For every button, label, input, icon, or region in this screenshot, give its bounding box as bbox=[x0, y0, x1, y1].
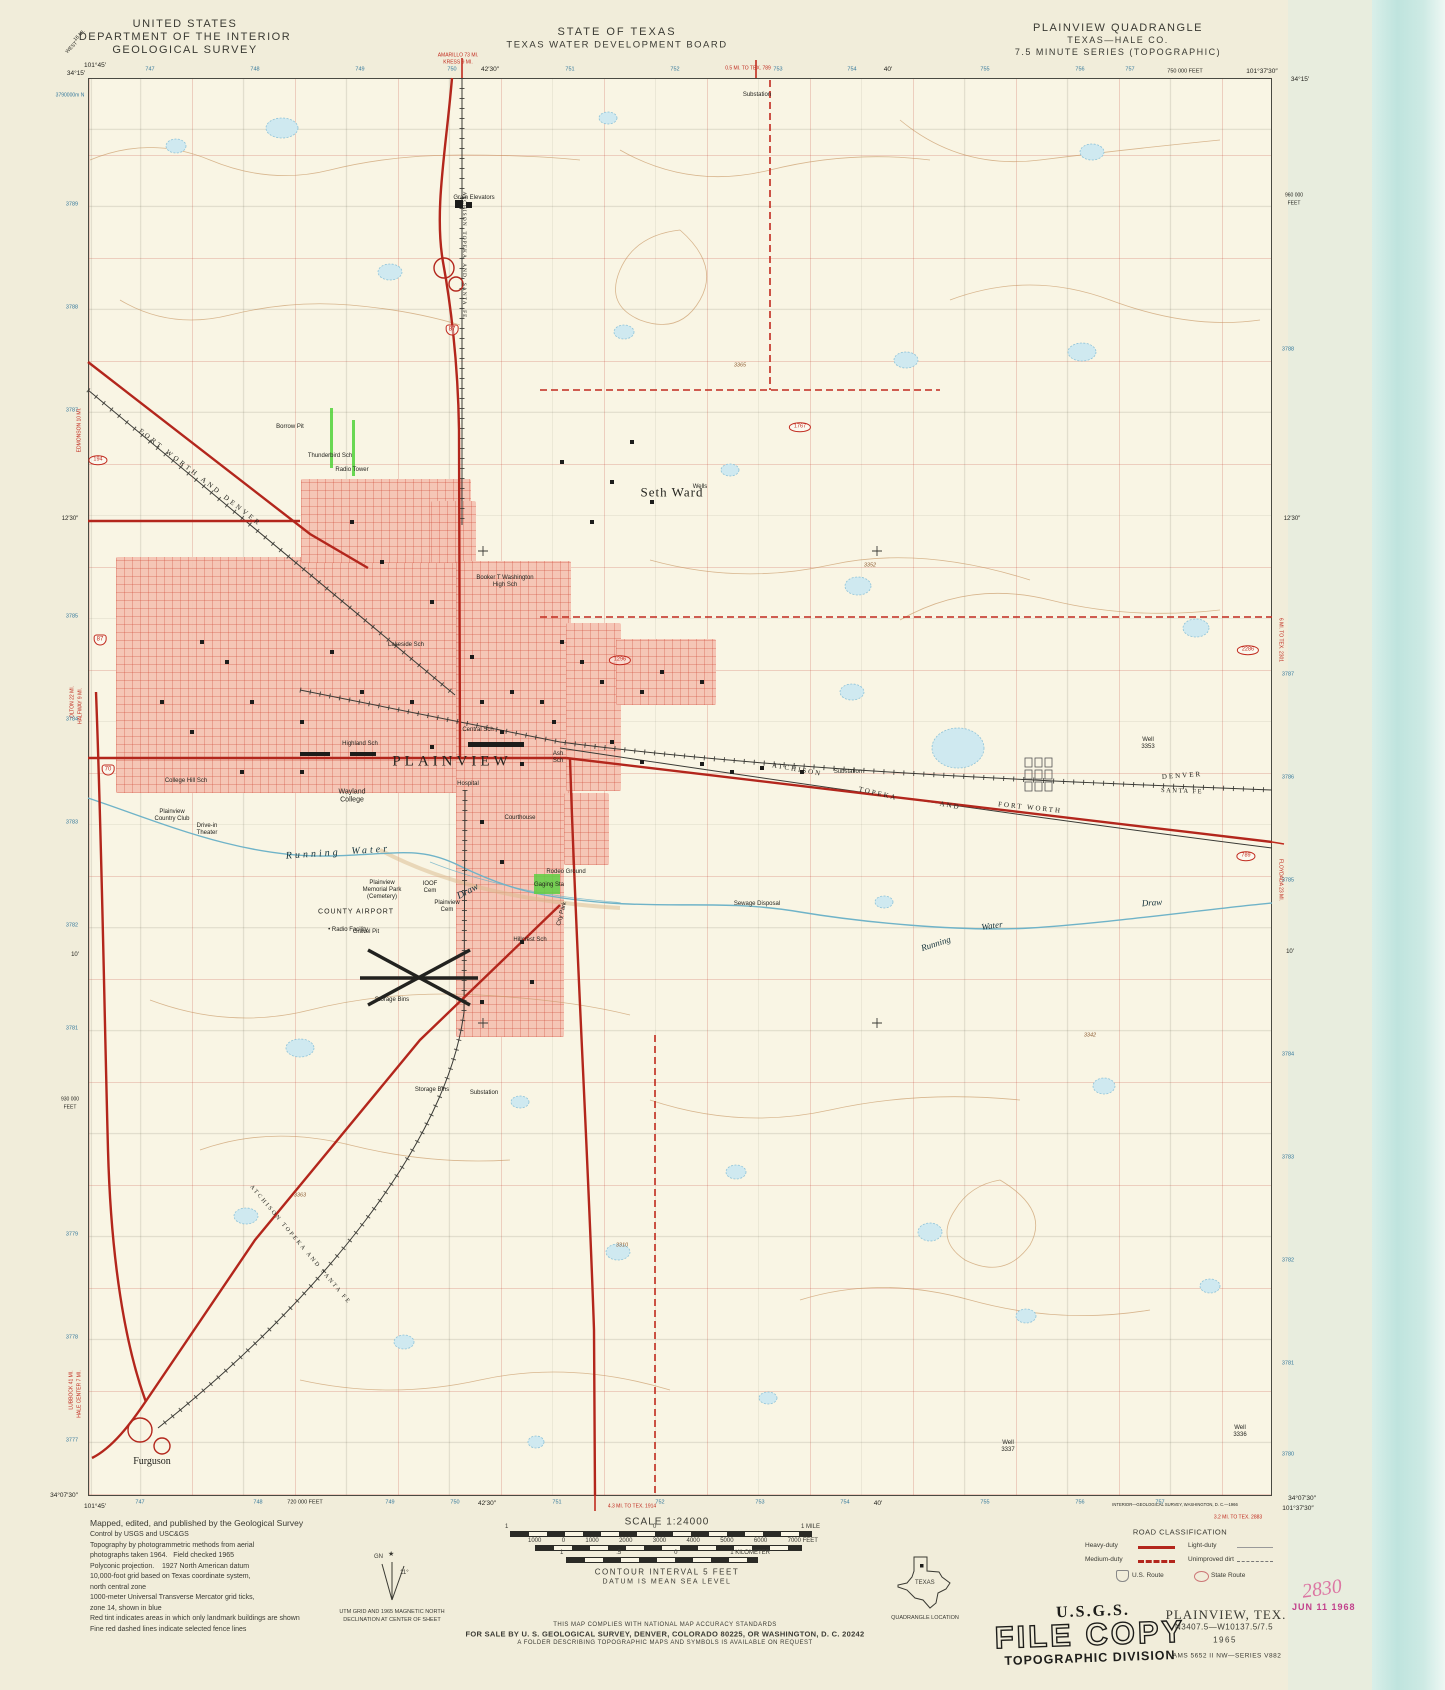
map-label: 750 bbox=[447, 67, 456, 73]
map-label: 3.2 MI. TO TEX. 2883 bbox=[1214, 1516, 1262, 1521]
credit-line: Fine red dashed lines indicate selected … bbox=[90, 1625, 420, 1636]
heavy-duty-sample bbox=[1138, 1546, 1175, 1549]
map-label: 3777 bbox=[66, 1438, 78, 1444]
map-label: FLOYDADA 23 MI. bbox=[1278, 859, 1283, 901]
scale-label: 0 bbox=[562, 1538, 565, 1544]
map-label: 3778 bbox=[66, 1335, 78, 1341]
map-label: 3785 bbox=[1282, 878, 1294, 884]
legend-us-route: U.S. Route bbox=[1132, 1572, 1164, 1579]
sheet-year: 1965 bbox=[1213, 1636, 1237, 1645]
map-label: 750 000 FEET bbox=[1167, 69, 1202, 75]
state-subtitle: TEXAS WATER DEVELOPMENT BOARD bbox=[506, 40, 727, 51]
scale-label: .5 bbox=[616, 1550, 621, 1556]
map-label: KRESS 9 MI. bbox=[443, 61, 472, 66]
datum-note: DATUM IS MEAN SEA LEVEL bbox=[603, 1579, 732, 1586]
agency-line-3: GEOLOGICAL SURVEY bbox=[112, 44, 257, 56]
map-label: 754 bbox=[840, 1500, 849, 1506]
quadrangle-location-caption: QUADRANGLE LOCATION bbox=[891, 1615, 959, 1621]
scale-label: 1 MILE bbox=[801, 1524, 820, 1530]
sheet-designation: N3407.5—W10137.5/7.5 bbox=[1175, 1623, 1273, 1632]
true-north-star: ★ bbox=[388, 1550, 394, 1558]
map-label: 40′ bbox=[884, 67, 892, 74]
map-label: 3779 bbox=[66, 1232, 78, 1238]
sheet-name: PLAINVIEW, TEX. bbox=[1166, 1607, 1287, 1623]
map-label: 756 bbox=[1075, 1500, 1084, 1506]
urban-area-east-plainview bbox=[616, 639, 716, 705]
map-label: HALFWAY 9 MI. bbox=[79, 688, 84, 724]
mile-bar-labels: 101 MILE bbox=[505, 1524, 820, 1530]
urban-area-plainview-link bbox=[431, 501, 476, 563]
map-label: 753 bbox=[755, 1500, 764, 1506]
map-label: 752 bbox=[655, 1500, 664, 1506]
map-label: FEET bbox=[1288, 202, 1301, 207]
map-label: 40′ bbox=[874, 1501, 882, 1508]
scale-label: 1000 bbox=[585, 1538, 598, 1544]
mile-bar bbox=[510, 1531, 812, 1537]
map-label: 3787 bbox=[66, 408, 78, 414]
accuracy-note: THIS MAP COMPLIES WITH NATIONAL MAP ACCU… bbox=[553, 1622, 777, 1628]
state-route-oval-icon bbox=[1194, 1571, 1209, 1582]
map-label: 34°07′30″ bbox=[1288, 1496, 1316, 1503]
map-label: 3788 bbox=[66, 305, 78, 311]
map-label: 720 000 FEET bbox=[287, 1500, 322, 1506]
scale-label: 5000 bbox=[720, 1538, 733, 1544]
map-label: HALE CENTER 7 MI. bbox=[78, 1370, 83, 1418]
map-label: 748 bbox=[250, 67, 259, 73]
map-label: 751 bbox=[565, 67, 574, 73]
agency-line-1: UNITED STATES bbox=[133, 18, 238, 30]
scan-edge-band-light bbox=[1288, 0, 1372, 1690]
map-label: 42′30″ bbox=[481, 67, 499, 74]
map-label: 3785 bbox=[66, 614, 78, 620]
grid-north-label: GN bbox=[374, 1554, 383, 1560]
map-label: FEET bbox=[64, 1106, 77, 1111]
map-label: 750 bbox=[450, 1500, 459, 1506]
map-label: 12′30″ bbox=[62, 516, 79, 522]
urban-area-east-lobe bbox=[566, 623, 621, 791]
credit-line: Mapped, edited, and published by the Geo… bbox=[90, 1516, 420, 1530]
declination-caption-1: UTM GRID AND 1965 MAGNETIC NORTH bbox=[339, 1609, 444, 1615]
date-received-stamp: JUN 11 1968 bbox=[1292, 1602, 1356, 1612]
map-label: 3788 bbox=[1282, 347, 1294, 353]
scale-label: 3000 bbox=[653, 1538, 666, 1544]
map-label: OLTON 22 MI. bbox=[71, 686, 76, 718]
scale-label: 1 bbox=[505, 1524, 508, 1530]
map-label: 6 MI. TO TEX. 2301 bbox=[1278, 618, 1283, 662]
map-label: 753 bbox=[773, 67, 782, 73]
unimproved-sample bbox=[1237, 1561, 1273, 1562]
map-label: 748 bbox=[253, 1500, 262, 1506]
scale-label: 0 bbox=[674, 1550, 677, 1556]
scale-label: 1 bbox=[560, 1550, 563, 1556]
map-label: 34°15′ bbox=[1291, 77, 1309, 84]
map-label: 749 bbox=[385, 1500, 394, 1506]
map-label: 747 bbox=[145, 67, 154, 73]
map-label: 3783 bbox=[1282, 1155, 1294, 1161]
scale-label: 6000 bbox=[754, 1538, 767, 1544]
map-label: LUBBOCK 41 MI. bbox=[70, 1370, 75, 1409]
map-label: 0.5 MI. TO TEX. 789 bbox=[725, 67, 771, 72]
map-label: 34°07′30″ bbox=[50, 1493, 78, 1500]
map-label: 3784 bbox=[66, 717, 78, 723]
map-label: 34°15′ bbox=[67, 71, 85, 78]
scan-edge-band bbox=[1372, 0, 1445, 1690]
feet-bar-labels: 100001000200030004000500060007000 FEET bbox=[528, 1538, 818, 1544]
map-label: 3787 bbox=[1282, 672, 1294, 678]
map-label: 101°37′30″ bbox=[1246, 69, 1277, 76]
state-title: STATE OF TEXAS bbox=[557, 26, 676, 38]
map-label: 101°45′ bbox=[84, 1504, 106, 1511]
folder-note: A FOLDER DESCRIBING TOPOGRAPHIC MAPS AND… bbox=[517, 1640, 812, 1646]
light-duty-sample bbox=[1237, 1547, 1273, 1548]
scale-label: 7000 FEET bbox=[788, 1538, 818, 1544]
scale-label: 0 bbox=[653, 1524, 656, 1530]
sale-note: FOR SALE BY U. S. GEOLOGICAL SURVEY, DEN… bbox=[466, 1630, 865, 1639]
map-label: 3784 bbox=[1282, 1052, 1294, 1058]
credit-line: Control by USGS and USC&GS bbox=[90, 1530, 420, 1541]
map-label: 101°37′30″ bbox=[1282, 1506, 1313, 1513]
road-classification-title: ROAD CLASSIFICATION bbox=[1133, 1528, 1227, 1537]
scale-label: 1 KILOMETER bbox=[730, 1550, 770, 1556]
km-bar-labels: 1.501 KILOMETER bbox=[560, 1550, 770, 1556]
agency-line-2: DEPARTMENT OF THE INTERIOR bbox=[79, 31, 291, 43]
map-label: 3789 bbox=[66, 202, 78, 208]
legend-medium-duty: Medium-duty bbox=[1085, 1556, 1123, 1563]
map-label: EDMONSON 10 MI. bbox=[78, 408, 83, 453]
declination-caption-2: DECLINATION AT CENTER OF SHEET bbox=[343, 1617, 441, 1623]
legend-unimproved: Unimproved dirt bbox=[1188, 1556, 1234, 1563]
map-label: 3782 bbox=[66, 923, 78, 929]
map-label: 755 bbox=[980, 67, 989, 73]
map-label: 3783 bbox=[66, 820, 78, 826]
scale-label: 1000 bbox=[528, 1538, 541, 1544]
map-sheet bbox=[88, 78, 1272, 1496]
scanned-topo-sheet: { "header": { "agency1": "UNITED STATES"… bbox=[0, 0, 1445, 1690]
map-label: 755 bbox=[980, 1500, 989, 1506]
urban-area-plainview-west bbox=[116, 557, 466, 793]
credit-line: Topography by photogrammetric methods fr… bbox=[90, 1541, 420, 1552]
scale-label: 4000 bbox=[687, 1538, 700, 1544]
map-label: 754 bbox=[847, 67, 856, 73]
map-label: 757 bbox=[1125, 67, 1134, 73]
us-route-shield-icon bbox=[1116, 1570, 1129, 1582]
map-label: INTERIOR—GEOLOGICAL SURVEY, WASHINGTON, … bbox=[1112, 1503, 1238, 1507]
map-label: 101°45′ bbox=[84, 63, 106, 70]
map-label: 930 000 bbox=[61, 1098, 79, 1103]
legend-heavy-duty: Heavy-duty bbox=[1085, 1542, 1118, 1549]
map-label: 3781 bbox=[1282, 1361, 1294, 1367]
urban-area-plainview-east bbox=[456, 561, 571, 795]
urban-area-plainview-se bbox=[564, 793, 609, 865]
map-label: 747 bbox=[135, 1500, 144, 1506]
map-label: 749 bbox=[355, 67, 364, 73]
map-label: 3781 bbox=[66, 1026, 78, 1032]
sheet-series: AMS 5652 II NW—SERIES V882 bbox=[1173, 1653, 1282, 1660]
map-label: 3786 bbox=[1282, 775, 1294, 781]
map-label: 4.3 MI. TO TEX. 1914 bbox=[608, 1505, 656, 1510]
km-bar bbox=[566, 1557, 758, 1563]
map-label: 756 bbox=[1075, 67, 1084, 73]
map-label: 757 bbox=[1155, 1500, 1164, 1506]
legend-state-route: State Route bbox=[1211, 1572, 1245, 1579]
map-label: 12′30″ bbox=[1284, 516, 1301, 522]
map-label: WEST bbox=[65, 41, 79, 55]
map-label: 752 bbox=[670, 67, 679, 73]
map-label: 3780 bbox=[1282, 1452, 1294, 1458]
map-label: 3782 bbox=[1282, 1258, 1294, 1264]
quad-county: TEXAS—HALE CO. bbox=[1067, 35, 1169, 45]
map-label: 10′ bbox=[71, 952, 79, 958]
map-label: 960 000 bbox=[1285, 194, 1303, 199]
declination-angle: 11° bbox=[400, 1570, 409, 1576]
map-label: 10′ bbox=[1286, 949, 1294, 955]
medium-duty-sample bbox=[1138, 1560, 1175, 1563]
contour-interval: CONTOUR INTERVAL 5 FEET bbox=[595, 1568, 739, 1577]
scale-label: 2000 bbox=[619, 1538, 632, 1544]
texas-label: TEXAS bbox=[915, 1580, 935, 1586]
map-label: 42′30″ bbox=[478, 1501, 496, 1508]
quadrangle-location-inset: TEXAS bbox=[895, 1556, 953, 1615]
legend-light-duty: Light-duty bbox=[1188, 1542, 1217, 1549]
map-label: AMARILLO 73 MI. bbox=[438, 54, 479, 59]
quad-title: PLAINVIEW QUADRANGLE bbox=[1033, 22, 1203, 34]
quad-series: 7.5 MINUTE SERIES (TOPOGRAPHIC) bbox=[1015, 47, 1221, 57]
handwritten-number: 2830 bbox=[1301, 1575, 1344, 1603]
urban-area-plainview-south bbox=[456, 793, 564, 1037]
map-label: 3790000m N bbox=[56, 94, 85, 99]
map-label: 751 bbox=[552, 1500, 561, 1506]
